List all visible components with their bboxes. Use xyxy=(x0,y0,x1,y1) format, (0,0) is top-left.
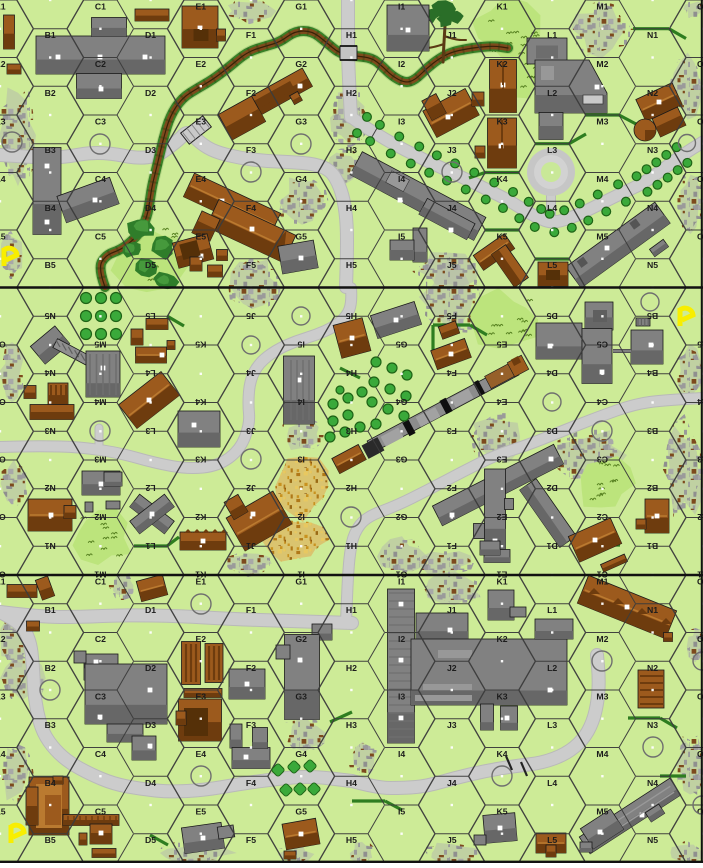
svg-text:B3: B3 xyxy=(45,145,56,155)
svg-text:M1: M1 xyxy=(596,577,608,587)
svg-text:G1: G1 xyxy=(295,2,307,12)
svg-text:B5: B5 xyxy=(45,835,56,845)
svg-text:G3: G3 xyxy=(295,692,307,702)
svg-text:N5: N5 xyxy=(647,260,658,270)
svg-text:C3: C3 xyxy=(95,692,106,702)
svg-text:H4: H4 xyxy=(346,203,357,213)
svg-text:J2: J2 xyxy=(246,483,256,493)
svg-text:B3: B3 xyxy=(647,426,658,436)
svg-text:O4: O4 xyxy=(0,397,6,407)
svg-text:H1: H1 xyxy=(346,30,357,40)
svg-text:J3: J3 xyxy=(246,426,256,436)
svg-text:C5: C5 xyxy=(597,340,608,350)
svg-text:G2: G2 xyxy=(396,512,408,522)
svg-text:C5: C5 xyxy=(95,807,106,817)
svg-text:M2: M2 xyxy=(94,512,106,522)
svg-text:M3: M3 xyxy=(596,692,608,702)
svg-text:B2: B2 xyxy=(45,88,56,98)
svg-text:B2: B2 xyxy=(45,663,56,673)
svg-text:F5: F5 xyxy=(246,260,256,270)
svg-text:I3: I3 xyxy=(398,692,405,702)
svg-text:F5: F5 xyxy=(246,835,256,845)
svg-text:C2: C2 xyxy=(597,512,608,522)
svg-text:K4: K4 xyxy=(496,174,507,184)
svg-text:K4: K4 xyxy=(195,397,206,407)
svg-text:M3: M3 xyxy=(596,117,608,127)
svg-text:H2: H2 xyxy=(346,663,357,673)
svg-text:J4: J4 xyxy=(447,778,457,788)
svg-text:K1: K1 xyxy=(496,2,507,12)
svg-text:N5: N5 xyxy=(44,311,55,321)
svg-text:F4: F4 xyxy=(447,368,457,378)
svg-text:M5: M5 xyxy=(94,340,106,350)
svg-text:H2: H2 xyxy=(346,483,357,493)
svg-text:K5: K5 xyxy=(496,807,507,817)
svg-text:G4: G4 xyxy=(396,397,408,407)
svg-text:I4: I4 xyxy=(398,174,405,184)
svg-text:D5: D5 xyxy=(145,835,156,845)
svg-text:F3: F3 xyxy=(447,426,457,436)
svg-text:I2: I2 xyxy=(297,512,304,522)
svg-text:N1: N1 xyxy=(647,30,658,40)
svg-text:M3: M3 xyxy=(94,455,106,465)
svg-text:C1: C1 xyxy=(95,2,106,12)
svg-text:E2: E2 xyxy=(195,59,206,69)
svg-text:M2: M2 xyxy=(596,634,608,644)
svg-text:D3: D3 xyxy=(145,720,156,730)
svg-text:I1: I1 xyxy=(398,577,405,587)
svg-text:D5: D5 xyxy=(145,260,156,270)
svg-text:I5: I5 xyxy=(297,340,304,350)
svg-text:D3: D3 xyxy=(546,426,557,436)
svg-text:H4: H4 xyxy=(346,368,357,378)
svg-text:I2: I2 xyxy=(398,634,405,644)
svg-text:D5: D5 xyxy=(546,311,557,321)
svg-text:D1: D1 xyxy=(546,541,557,551)
svg-text:F2: F2 xyxy=(246,88,256,98)
svg-text:I4: I4 xyxy=(398,749,405,759)
svg-text:B4: B4 xyxy=(45,778,56,788)
svg-text:K2: K2 xyxy=(496,634,507,644)
svg-text:M2: M2 xyxy=(596,59,608,69)
svg-text:I3: I3 xyxy=(297,455,304,465)
svg-text:K3: K3 xyxy=(496,692,507,702)
svg-text:F1: F1 xyxy=(246,605,256,615)
svg-text:F5: F5 xyxy=(447,311,457,321)
svg-text:L5: L5 xyxy=(547,835,557,845)
svg-text:F3: F3 xyxy=(246,145,256,155)
svg-text:D1: D1 xyxy=(145,605,156,615)
svg-text:J5: J5 xyxy=(246,311,256,321)
svg-text:D2: D2 xyxy=(145,88,156,98)
svg-text:J3: J3 xyxy=(447,720,457,730)
svg-text:E3: E3 xyxy=(195,692,206,702)
svg-text:A4: A4 xyxy=(0,174,6,184)
svg-text:N1: N1 xyxy=(647,605,658,615)
svg-text:O3: O3 xyxy=(0,455,6,465)
svg-text:F3: F3 xyxy=(246,720,256,730)
svg-text:I3: I3 xyxy=(398,117,405,127)
svg-text:E2: E2 xyxy=(195,634,206,644)
svg-text:L2: L2 xyxy=(547,663,557,673)
svg-text:H5: H5 xyxy=(346,311,357,321)
svg-text:N5: N5 xyxy=(647,835,658,845)
svg-text:B5: B5 xyxy=(45,260,56,270)
svg-text:J5: J5 xyxy=(447,260,457,270)
svg-text:G1: G1 xyxy=(295,577,307,587)
svg-text:L4: L4 xyxy=(145,368,155,378)
svg-text:L3: L3 xyxy=(145,426,155,436)
svg-text:M4: M4 xyxy=(596,174,608,184)
svg-text:E1: E1 xyxy=(195,577,206,587)
svg-text:O2: O2 xyxy=(0,512,6,522)
svg-text:L3: L3 xyxy=(547,720,557,730)
svg-text:K2: K2 xyxy=(496,59,507,69)
svg-text:J2: J2 xyxy=(447,88,457,98)
svg-text:F1: F1 xyxy=(246,30,256,40)
svg-text:J3: J3 xyxy=(447,145,457,155)
svg-text:F2: F2 xyxy=(246,663,256,673)
svg-text:G5: G5 xyxy=(295,232,307,242)
svg-text:E5: E5 xyxy=(195,807,206,817)
svg-text:E5: E5 xyxy=(497,340,508,350)
svg-text:N3: N3 xyxy=(647,145,658,155)
svg-text:K5: K5 xyxy=(195,340,206,350)
svg-text:G5: G5 xyxy=(396,340,408,350)
svg-text:K3: K3 xyxy=(195,455,206,465)
svg-text:A1: A1 xyxy=(0,2,6,12)
svg-text:A3: A3 xyxy=(0,692,6,702)
svg-text:C3: C3 xyxy=(597,455,608,465)
svg-text:L1: L1 xyxy=(145,541,155,551)
svg-text:G3: G3 xyxy=(396,455,408,465)
svg-text:H5: H5 xyxy=(346,260,357,270)
svg-text:H3: H3 xyxy=(346,720,357,730)
svg-text:K2: K2 xyxy=(195,512,206,522)
svg-text:I1: I1 xyxy=(398,2,405,12)
svg-text:L2: L2 xyxy=(145,483,155,493)
svg-text:B2: B2 xyxy=(647,483,658,493)
svg-text:E4: E4 xyxy=(195,749,206,759)
svg-text:N4: N4 xyxy=(647,203,658,213)
svg-text:J5: J5 xyxy=(447,835,457,845)
svg-text:G3: G3 xyxy=(295,117,307,127)
svg-text:H5: H5 xyxy=(346,835,357,845)
svg-text:E4: E4 xyxy=(195,174,206,184)
svg-text:B1: B1 xyxy=(45,30,56,40)
svg-text:L2: L2 xyxy=(547,88,557,98)
svg-text:A5: A5 xyxy=(0,232,6,242)
svg-text:I2: I2 xyxy=(398,59,405,69)
svg-text:A2: A2 xyxy=(0,634,6,644)
svg-text:I5: I5 xyxy=(398,807,405,817)
svg-text:N4: N4 xyxy=(44,368,55,378)
svg-text:N3: N3 xyxy=(647,720,658,730)
svg-text:B1: B1 xyxy=(45,605,56,615)
svg-text:C1: C1 xyxy=(95,577,106,587)
svg-text:A3: A3 xyxy=(0,117,6,127)
svg-text:F4: F4 xyxy=(246,203,256,213)
svg-text:M4: M4 xyxy=(94,397,106,407)
svg-text:B5: B5 xyxy=(647,311,658,321)
svg-text:C4: C4 xyxy=(95,749,106,759)
svg-text:F4: F4 xyxy=(246,778,256,788)
svg-text:L1: L1 xyxy=(547,605,557,615)
svg-text:E3: E3 xyxy=(195,117,206,127)
svg-text:L4: L4 xyxy=(547,203,557,213)
svg-text:C4: C4 xyxy=(95,174,106,184)
svg-text:C3: C3 xyxy=(95,117,106,127)
svg-text:D4: D4 xyxy=(145,778,156,788)
svg-text:O5: O5 xyxy=(0,340,6,350)
svg-text:G4: G4 xyxy=(295,174,307,184)
svg-text:H1: H1 xyxy=(346,605,357,615)
svg-text:L3: L3 xyxy=(547,145,557,155)
svg-text:N4: N4 xyxy=(647,778,658,788)
svg-text:F2: F2 xyxy=(447,483,457,493)
svg-text:G4: G4 xyxy=(295,749,307,759)
svg-text:B4: B4 xyxy=(45,203,56,213)
svg-text:I4: I4 xyxy=(297,397,304,407)
svg-text:J1: J1 xyxy=(246,541,256,551)
svg-text:D4: D4 xyxy=(145,203,156,213)
svg-text:B3: B3 xyxy=(45,720,56,730)
svg-text:H3: H3 xyxy=(346,426,357,436)
svg-text:G2: G2 xyxy=(295,634,307,644)
svg-text:D2: D2 xyxy=(145,663,156,673)
svg-text:E2: E2 xyxy=(497,512,508,522)
svg-text:J4: J4 xyxy=(447,203,457,213)
svg-text:N3: N3 xyxy=(44,426,55,436)
svg-text:M4: M4 xyxy=(596,749,608,759)
svg-text:E1: E1 xyxy=(195,2,206,12)
svg-text:A2: A2 xyxy=(0,59,6,69)
svg-text:G5: G5 xyxy=(295,807,307,817)
svg-text:D3: D3 xyxy=(145,145,156,155)
svg-text:E5: E5 xyxy=(195,232,206,242)
svg-text:E3: E3 xyxy=(497,455,508,465)
svg-text:M5: M5 xyxy=(596,807,608,817)
svg-text:A1: A1 xyxy=(0,577,6,587)
svg-text:J2: J2 xyxy=(447,663,457,673)
svg-text:J1: J1 xyxy=(447,30,457,40)
svg-text:B4: B4 xyxy=(647,368,658,378)
svg-text:K5: K5 xyxy=(496,232,507,242)
svg-text:C4: C4 xyxy=(597,397,608,407)
svg-text:A5: A5 xyxy=(0,807,6,817)
svg-text:L5: L5 xyxy=(547,260,557,270)
svg-text:B1: B1 xyxy=(647,541,658,551)
svg-text:J1: J1 xyxy=(447,605,457,615)
svg-text:L1: L1 xyxy=(547,30,557,40)
svg-text:M1: M1 xyxy=(596,2,608,12)
svg-text:H3: H3 xyxy=(346,145,357,155)
svg-text:A4: A4 xyxy=(0,749,6,759)
svg-text:D1: D1 xyxy=(145,30,156,40)
svg-text:G2: G2 xyxy=(295,59,307,69)
svg-text:E4: E4 xyxy=(497,397,508,407)
svg-text:L5: L5 xyxy=(145,311,155,321)
svg-text:H1: H1 xyxy=(346,541,357,551)
svg-text:C2: C2 xyxy=(95,634,106,644)
svg-text:K3: K3 xyxy=(496,117,507,127)
svg-text:C5: C5 xyxy=(95,232,106,242)
svg-text:L4: L4 xyxy=(547,778,557,788)
svg-text:H2: H2 xyxy=(346,88,357,98)
svg-text:C2: C2 xyxy=(95,59,106,69)
svg-text:N1: N1 xyxy=(44,541,55,551)
svg-text:N2: N2 xyxy=(647,88,658,98)
svg-text:N2: N2 xyxy=(647,663,658,673)
svg-text:K1: K1 xyxy=(496,577,507,587)
svg-text:M5: M5 xyxy=(596,232,608,242)
svg-text:H4: H4 xyxy=(346,778,357,788)
svg-text:D2: D2 xyxy=(546,483,557,493)
svg-text:I5: I5 xyxy=(398,232,405,242)
svg-text:N2: N2 xyxy=(44,483,55,493)
svg-text:F1: F1 xyxy=(447,541,457,551)
svg-text:J4: J4 xyxy=(246,368,256,378)
svg-text:D4: D4 xyxy=(546,368,557,378)
